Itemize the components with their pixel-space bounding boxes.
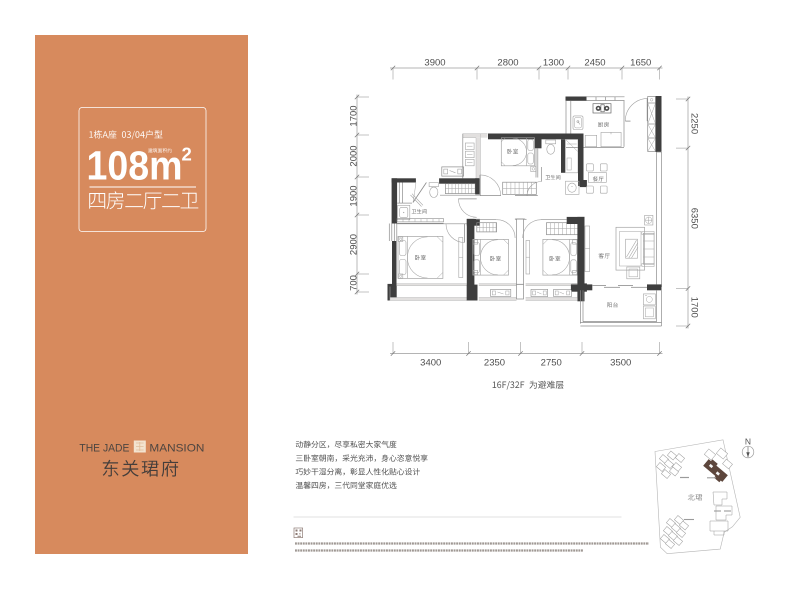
svg-text:THE JADE: THE JADE: [79, 442, 129, 454]
svg-text:6350: 6350: [689, 208, 700, 229]
svg-text:2000: 2000: [349, 145, 360, 166]
svg-text:N: N: [745, 437, 751, 447]
svg-text:3500: 3500: [610, 358, 631, 369]
svg-text:2250: 2250: [689, 113, 700, 134]
svg-text:700: 700: [349, 275, 360, 291]
svg-text:1650: 1650: [630, 58, 651, 69]
svg-text:1700: 1700: [689, 297, 700, 318]
svg-text:2800: 2800: [497, 58, 518, 69]
svg-text:2350: 2350: [484, 358, 505, 369]
svg-text:3900: 3900: [424, 58, 445, 69]
svg-text:MANSION: MANSION: [149, 442, 204, 454]
svg-text:1700: 1700: [349, 105, 360, 126]
svg-text:3400: 3400: [420, 358, 441, 369]
svg-text:2750: 2750: [541, 358, 562, 369]
svg-text:2450: 2450: [584, 58, 605, 69]
svg-text:2: 2: [182, 144, 192, 165]
svg-text:2900: 2900: [349, 234, 360, 255]
svg-text:1300: 1300: [543, 58, 564, 69]
svg-text:1900: 1900: [349, 185, 360, 206]
